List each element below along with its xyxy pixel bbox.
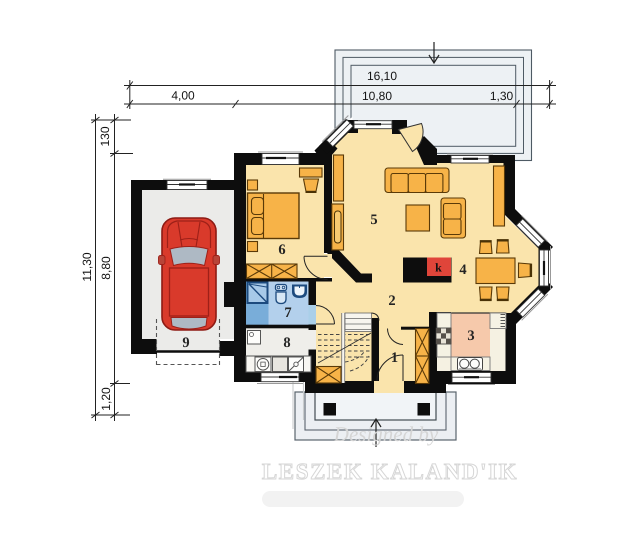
svg-text:9: 9 bbox=[182, 335, 189, 351]
svg-text:7: 7 bbox=[284, 305, 291, 321]
svg-text:k: k bbox=[435, 261, 442, 275]
svg-text:130: 130 bbox=[98, 126, 112, 146]
svg-text:8: 8 bbox=[283, 335, 290, 351]
svg-text:16,10: 16,10 bbox=[367, 69, 397, 83]
svg-text:LESZEK KALAND'IK: LESZEK KALAND'IK bbox=[262, 459, 518, 484]
svg-text:4,00: 4,00 bbox=[171, 89, 195, 103]
svg-text:5: 5 bbox=[370, 212, 377, 228]
svg-text:1,30: 1,30 bbox=[490, 89, 514, 103]
svg-text:6: 6 bbox=[278, 242, 285, 258]
svg-text:10,80: 10,80 bbox=[362, 89, 392, 103]
svg-text:3: 3 bbox=[467, 328, 474, 344]
svg-text:1,20: 1,20 bbox=[99, 387, 113, 411]
svg-text:2: 2 bbox=[388, 293, 395, 309]
svg-text:4: 4 bbox=[459, 262, 466, 278]
svg-text:Designed by: Designed by bbox=[333, 422, 439, 446]
svg-text:11,30: 11,30 bbox=[80, 252, 94, 281]
svg-text:8,80: 8,80 bbox=[99, 256, 113, 280]
svg-text:1: 1 bbox=[391, 350, 398, 366]
